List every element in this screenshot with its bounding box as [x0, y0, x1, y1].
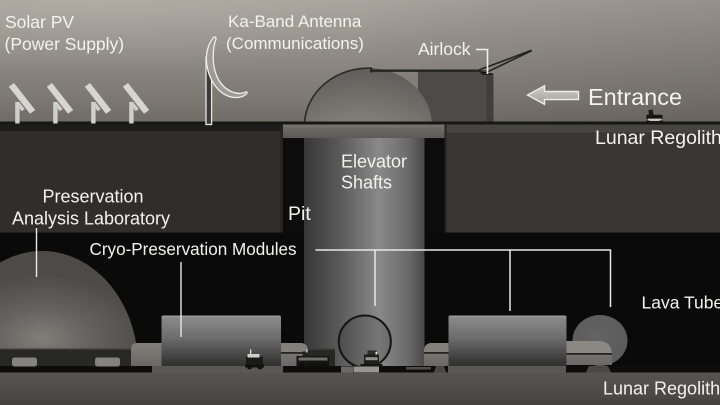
- svg-text:Elevator: Elevator: [341, 152, 407, 172]
- svg-text:Cryo-Preservation Modules: Cryo-Preservation Modules: [90, 240, 297, 259]
- svg-text:(Communications): (Communications): [226, 34, 364, 53]
- svg-text:(Power Supply): (Power Supply): [5, 34, 125, 54]
- svg-text:Airlock: Airlock: [418, 39, 471, 59]
- svg-text:Pit: Pit: [288, 203, 311, 225]
- svg-text:Entrance: Entrance: [588, 84, 682, 110]
- svg-text:Lava Tube: Lava Tube: [642, 293, 720, 313]
- svg-text:Lunar Regolith: Lunar Regolith: [603, 379, 720, 399]
- svg-text:Preservation: Preservation: [42, 187, 143, 207]
- svg-text:Ka-Band Antenna: Ka-Band Antenna: [228, 12, 362, 31]
- svg-text:Solar PV: Solar PV: [5, 12, 74, 32]
- svg-text:Shafts: Shafts: [341, 173, 392, 193]
- svg-text:Analysis Laboratory: Analysis Laboratory: [12, 209, 170, 229]
- svg-text:Lunar Regolith L: Lunar Regolith L: [595, 127, 720, 149]
